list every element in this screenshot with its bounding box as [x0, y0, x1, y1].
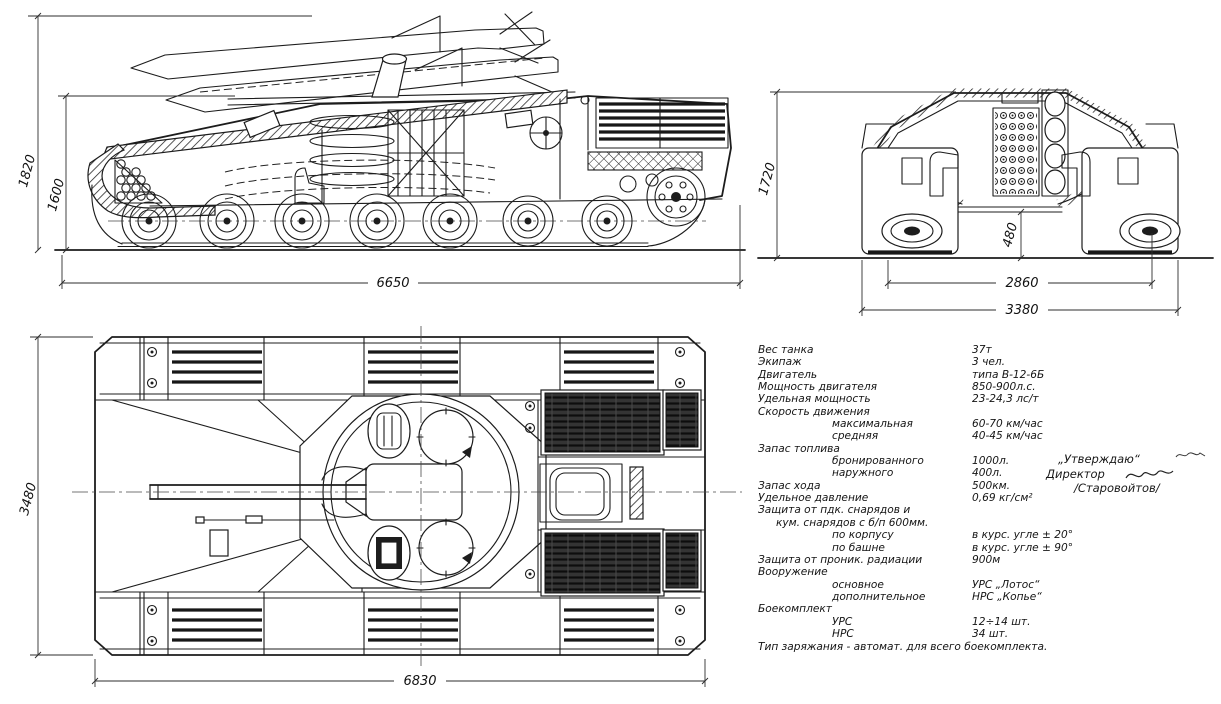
spec-row: Вес танка37т — [758, 344, 1220, 356]
approval-block: „Утверждаю“ Директор /Старовойтов/ — [1046, 452, 1221, 496]
spec-label: Мощность двигателя — [758, 381, 877, 393]
spec-label: Боекомплект — [758, 603, 832, 615]
spec-label: средняя — [758, 430, 878, 442]
commander-cupola — [419, 410, 473, 464]
stowage-box — [210, 530, 228, 556]
spec-value: НРС „Копье“ — [972, 591, 1042, 603]
spec-label: Удельное давление — [758, 492, 868, 504]
spec-label: максимальная — [758, 418, 913, 430]
director-signature — [1124, 465, 1176, 485]
spec-label: Запас топлива — [758, 443, 840, 455]
spec-value: 1000л. — [972, 455, 1009, 467]
spec-row: средняя40-45 км/час — [758, 430, 1220, 442]
spec-row: дополнительноеНРС „Копье“ — [758, 591, 1220, 603]
spec-label: наружного — [758, 467, 893, 479]
spec-row: по корпусув курс. угле ± 20° — [758, 529, 1220, 541]
spec-label: Вес танка — [758, 344, 813, 356]
loading-type-note: Тип заряжания - автомат. для всего боеко… — [758, 641, 1220, 653]
spec-row: Защита от пдк. снарядов и — [758, 504, 1220, 516]
wheel — [122, 194, 176, 248]
spec-value: 850-900л.с. — [972, 381, 1036, 393]
cupola-cone — [372, 60, 406, 97]
spec-value: 37т — [972, 344, 992, 356]
spec-row: Защита от проник. радиации900м — [758, 554, 1220, 566]
radiator-grille — [545, 393, 660, 452]
spec-label: Скорость движения — [758, 406, 870, 418]
spec-value: 500км. — [972, 480, 1010, 492]
spec-row: Вооружение — [758, 566, 1220, 578]
spec-label: Двигатель — [758, 369, 817, 381]
wheel — [503, 196, 553, 246]
spec-row: Двигательтипа В-12-6Б — [758, 369, 1220, 381]
crew-seat — [295, 168, 324, 203]
dim-label-1600: 1600 — [45, 177, 68, 213]
spec-label: по корпусу — [758, 529, 894, 541]
spec-label: по башне — [758, 542, 885, 554]
dim-label-1820: 1820 — [16, 153, 39, 189]
spec-label: УРС — [758, 616, 852, 628]
wheel — [582, 196, 632, 246]
spec-row: по башнев курс. угле ± 90° — [758, 542, 1220, 554]
spec-label: Защита от проник. радиации — [758, 554, 922, 566]
drive-sprocket — [647, 168, 705, 226]
spec-value: 40-45 км/час — [972, 430, 1043, 442]
spec-label: НРС — [758, 628, 854, 640]
spec-label: Запас хода — [758, 480, 820, 492]
dim-label-1720: 1720 — [756, 161, 779, 197]
spec-label: Вооружение — [758, 566, 828, 578]
second-cupola — [419, 521, 473, 575]
spec-row: максимальная60-70 км/час — [758, 418, 1220, 430]
intake-screen — [588, 152, 702, 170]
top-view: 3480 6830 — [17, 326, 742, 689]
dim-label-6650: 6650 — [376, 276, 409, 291]
spec-value: в курс. угле ± 90° — [972, 542, 1073, 554]
spec-label: основное — [758, 579, 884, 591]
spec-value: 400л. — [972, 467, 1002, 479]
spec-label: кум. снарядов с б/п 600мм. — [758, 517, 928, 529]
loader-hatch — [368, 404, 410, 458]
spec-value: 12÷14 шт. — [972, 616, 1030, 628]
spec-row: Боекомплект — [758, 603, 1220, 615]
spec-value: 3 чел. — [972, 356, 1005, 368]
spec-value: 60-70 км/час — [972, 418, 1043, 430]
blueprint-page: 1820 1600 6650 — [0, 0, 1221, 704]
spec-value: 900м — [972, 554, 1000, 566]
spec-label: Удельная мощность — [758, 393, 871, 405]
spec-row: Мощность двигателя850-900л.с. — [758, 381, 1220, 393]
spec-row: основноеУРС „Лотос“ — [758, 579, 1220, 591]
spec-label: Экипаж — [758, 356, 802, 368]
spec-row: УРС12÷14 шт. — [758, 616, 1220, 628]
dim-label-480: 480 — [1000, 221, 1021, 249]
spec-value: 34 шт. — [972, 628, 1008, 640]
exhaust-grille — [545, 533, 660, 593]
margin-scribble — [1174, 448, 1208, 462]
glacis-armor — [102, 90, 567, 160]
spec-row: Скорость движения — [758, 406, 1220, 418]
wheel — [200, 194, 254, 248]
dim-label-2860: 2860 — [1005, 276, 1038, 291]
wheel — [275, 194, 329, 248]
spec-label: бронированного — [758, 455, 924, 467]
nose-armor — [88, 144, 215, 218]
spec-value: УРС „Лотос“ — [972, 579, 1040, 591]
right-track — [1082, 124, 1180, 254]
engine-deck-side — [588, 98, 728, 192]
spec-value: в курс. угле ± 20° — [972, 529, 1073, 541]
front-section-view: 1720 480 2860 3380 — [756, 89, 1213, 318]
spec-label: Защита от пдк. снарядов и — [758, 504, 910, 516]
dim-label-6830: 6830 — [403, 674, 436, 689]
wheel — [350, 194, 404, 248]
spec-label: дополнительное — [758, 591, 925, 603]
side-view: 1820 1600 6650 — [16, 12, 745, 291]
spec-value: 23-24,3 лс/т — [972, 393, 1039, 405]
spec-row: кум. снарядов с б/п 600мм. — [758, 517, 1220, 529]
spec-value: типа В-12-6Б — [972, 369, 1044, 381]
engine-deck-plan — [526, 390, 706, 596]
spec-row: Экипаж3 чел. — [758, 356, 1220, 368]
spec-table: Вес танка37тЭкипаж3 чел.Двигательтипа В-… — [758, 344, 1220, 654]
dim-label-3480: 3480 — [17, 481, 40, 517]
spec-value: 0,69 кг/см² — [972, 492, 1033, 504]
wheel — [423, 194, 477, 248]
spec-row: НРС34 шт. — [758, 628, 1220, 640]
dim-label-3380: 3380 — [1005, 303, 1038, 318]
spec-row: Удельная мощность23-24,3 лс/т — [758, 393, 1220, 405]
